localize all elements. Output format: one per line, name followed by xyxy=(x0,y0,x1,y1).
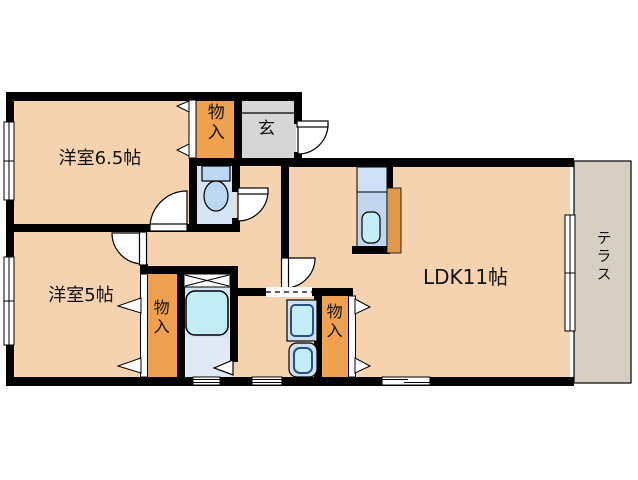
door-entrance-arc xyxy=(298,124,328,154)
closet-bl-door-strip xyxy=(141,274,148,377)
washbasin-bowl-icon xyxy=(291,305,313,336)
wall-hall-ldk xyxy=(281,166,289,258)
wall-bath-north xyxy=(140,266,238,274)
wall-ldk-top xyxy=(289,158,574,167)
window-bath-bottom xyxy=(193,377,220,385)
closet-bl-label: 物入 xyxy=(151,299,169,355)
room-6-5-label: 洋室6.5帖 xyxy=(46,149,154,169)
closet-mid-door-strip xyxy=(349,296,356,377)
window-ldk-bottom xyxy=(382,377,430,385)
terrace-label: テラス xyxy=(595,230,612,292)
wall-bottom xyxy=(6,377,574,386)
wall-room65-bottom xyxy=(6,224,240,232)
ldk-label: LDK11帖 xyxy=(413,266,518,288)
wall-toilet-west xyxy=(189,158,197,228)
window-washroom-bottom xyxy=(252,377,282,385)
laundry-pan-bowl-icon xyxy=(294,348,312,373)
wall-bath-east xyxy=(230,272,238,362)
wall-closetbl-bath-divider xyxy=(177,272,185,377)
wall-closet-entrance-divider xyxy=(234,92,242,162)
door-room65-leaf xyxy=(150,224,187,231)
wall-entrance-east-upper xyxy=(294,92,302,124)
door-ldk-leaf xyxy=(282,258,289,288)
bathtub-icon xyxy=(186,291,228,335)
toilet-tank-icon xyxy=(202,166,230,181)
toilet-bowl-icon xyxy=(204,181,228,211)
room-5-label: 洋室5帖 xyxy=(36,286,126,306)
wall-top xyxy=(6,92,302,101)
floorplan: 洋室6.5帖 洋室5帖 LDK11帖 玄 物入 物入 物入 テラス xyxy=(0,0,638,480)
entrance-label: 玄 xyxy=(258,120,275,139)
door-toilet-leaf xyxy=(238,188,268,194)
kitchen-counter-upper xyxy=(357,167,387,192)
closet-top-label: 物入 xyxy=(204,103,223,159)
closet-top-door-strip xyxy=(189,100,196,158)
kitchen-side-panel xyxy=(387,188,401,253)
kitchen-sink-icon xyxy=(362,212,380,243)
wall-under-entrance xyxy=(189,158,302,166)
floorplan-svg xyxy=(0,0,638,480)
kitchen-counter-base xyxy=(352,246,390,254)
door-entrance-leaf xyxy=(297,121,328,127)
closet-mid-label: 物入 xyxy=(324,303,342,359)
wall-toilet-east-upper xyxy=(232,158,240,192)
door-room5-leaf xyxy=(140,232,147,265)
